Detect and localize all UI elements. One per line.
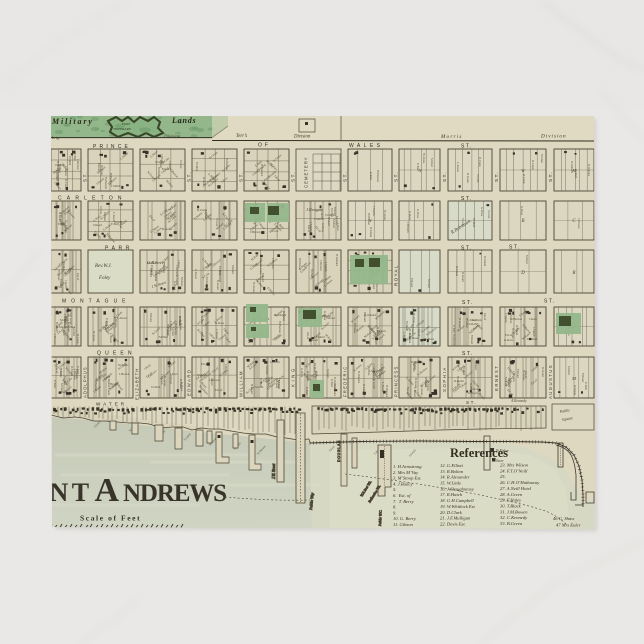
- svg-text:S.Cole: S.Cole: [277, 380, 281, 389]
- svg-text:CEMETERY: CEMETERY: [304, 156, 309, 188]
- svg-text:G.Ross: G.Ross: [408, 211, 412, 221]
- svg-text:R.Clark: R.Clark: [531, 160, 535, 170]
- svg-text:D.Mann: D.Mann: [178, 316, 182, 327]
- svg-text:G.Ross: G.Ross: [520, 206, 524, 216]
- svg-text:W.Burton: W.Burton: [278, 321, 282, 333]
- svg-text:J.Smith: J.Smith: [372, 206, 376, 216]
- svg-text:J.Brown: J.Brown: [114, 317, 118, 328]
- svg-text:R.Grant: R.Grant: [372, 379, 376, 389]
- svg-text:Terr’s: Terr’s: [236, 134, 247, 139]
- svg-text:H.Osburn: H.Osburn: [385, 385, 389, 398]
- svg-text:10. G. Berry: 10. G. Berry: [393, 516, 417, 521]
- svg-text:NT: NT: [50, 478, 93, 507]
- svg-text:W.Burton: W.Burton: [452, 334, 456, 346]
- svg-text:21. J.F.Mulligan: 21. J.F.Mulligan: [440, 516, 471, 521]
- svg-text:E.Bell: E.Bell: [369, 172, 373, 180]
- svg-text:D.Mann: D.Mann: [527, 337, 538, 341]
- svg-text:7. T. Berry: 7. T. Berry: [393, 499, 415, 504]
- svg-text:D.Mann: D.Mann: [70, 366, 74, 377]
- svg-text:D.Mann: D.Mann: [107, 385, 111, 396]
- svg-text:M.Hart: M.Hart: [58, 164, 62, 173]
- svg-text:2. Mrs M’Vay: 2. Mrs M’Vay: [393, 470, 419, 475]
- svg-text:M.Hart: M.Hart: [159, 335, 168, 339]
- svg-text:15. W.Little: 15. W.Little: [440, 481, 461, 486]
- svg-text:WALES: WALES: [349, 143, 383, 149]
- svg-text:Public W.C.: Public W.C.: [378, 510, 383, 527]
- svg-text:L.Street: L.Street: [112, 212, 116, 222]
- svg-text:S.Cole: S.Cole: [265, 366, 269, 375]
- svg-text:M.Rait: M.Rait: [327, 217, 331, 226]
- svg-text:Est.of: Est.of: [119, 221, 123, 229]
- svg-text:ST.: ST.: [83, 171, 88, 182]
- svg-text:3. M’Stoop Est.: 3. M’Stoop Est.: [393, 476, 422, 481]
- svg-text:T.Reed: T.Reed: [231, 265, 235, 274]
- svg-text:E.Bell: E.Bell: [413, 362, 417, 370]
- svg-text:T.Odell: T.Odell: [68, 156, 72, 165]
- svg-text:31. J.M.Bowen: 31. J.M.Bowen: [500, 509, 528, 514]
- svg-text:PRINCE: PRINCE: [93, 144, 131, 150]
- svg-text:13. R.Bolton: 13. R.Bolton: [440, 469, 464, 474]
- svg-text:R.Grant: R.Grant: [162, 227, 172, 231]
- svg-text:ST.: ST.: [461, 246, 473, 252]
- svg-text:D.Mann: D.Mann: [483, 256, 487, 267]
- svg-text:QUEEN: QUEEN: [97, 351, 136, 357]
- svg-text:G.Ross: G.Ross: [173, 281, 177, 291]
- svg-text:S.Cole: S.Cole: [179, 160, 183, 169]
- svg-text:Scale of Feet: Scale of Feet: [80, 514, 141, 523]
- svg-text:J.Brown: J.Brown: [119, 372, 130, 376]
- svg-text:ST.: ST.: [187, 171, 192, 182]
- svg-text:R.Clark: R.Clark: [522, 174, 526, 184]
- svg-text:16. J.Shaughnessy: 16. J.Shaughnessy: [440, 486, 475, 491]
- svg-text:J.Kerr: J.Kerr: [168, 161, 172, 169]
- svg-text:S.Cole: S.Cole: [487, 210, 491, 219]
- svg-text:G.Ross: G.Ross: [300, 368, 304, 378]
- svg-text:M.Hart: M.Hart: [162, 264, 166, 273]
- svg-text:M.Hart: M.Hart: [204, 210, 208, 219]
- svg-text:Est.of: Est.of: [505, 333, 513, 337]
- svg-text:D.Mann: D.Mann: [515, 325, 519, 336]
- svg-text:L.Street: L.Street: [381, 382, 385, 392]
- svg-text:30. T.Black: 30. T.Black: [500, 503, 522, 508]
- svg-text:W.Jones: W.Jones: [422, 153, 426, 164]
- svg-text:4. J.Bailey: 4. J.Bailey: [393, 481, 413, 486]
- svg-text:NDREWS: NDREWS: [123, 480, 227, 507]
- svg-text:J.Brown: J.Brown: [319, 260, 323, 271]
- svg-text:E.Bell: E.Bell: [53, 380, 57, 388]
- svg-text:OF: OF: [258, 143, 271, 149]
- svg-text:J.Smith: J.Smith: [324, 262, 328, 272]
- svg-text:M.Rait: M.Rait: [567, 366, 571, 375]
- svg-text:24. F.T.O’Neill: 24. F.T.O’Neill: [500, 468, 528, 473]
- svg-text:ST.: ST.: [462, 351, 474, 357]
- svg-text:M.Rait: M.Rait: [316, 335, 325, 339]
- svg-text:A.Kennedy: A.Kennedy: [510, 399, 527, 403]
- svg-text:6. Est. of: 6. Est. of: [393, 493, 411, 498]
- svg-text:T.Reed: T.Reed: [410, 278, 414, 287]
- svg-text:H.Osburn: H.Osburn: [333, 384, 337, 397]
- svg-text:TIPPERARY: TIPPERARY: [113, 127, 132, 131]
- svg-text:H: H: [571, 168, 576, 173]
- svg-text:S.Cole: S.Cole: [509, 315, 513, 324]
- svg-text:R.Clark: R.Clark: [179, 379, 183, 389]
- svg-text:Division.: Division.: [163, 135, 181, 140]
- svg-text:J.Brown: J.Brown: [53, 334, 57, 345]
- svg-text:ST.: ST.: [461, 196, 473, 202]
- svg-text:J.Brown: J.Brown: [209, 378, 220, 382]
- svg-text:W.Burton: W.Burton: [376, 170, 380, 182]
- svg-text:W.Jones: W.Jones: [118, 363, 129, 367]
- svg-text:L.Street: L.Street: [270, 360, 280, 364]
- svg-text:M.Hart: M.Hart: [103, 212, 107, 221]
- svg-text:ST.: ST.: [509, 245, 521, 251]
- svg-text:M.Hart: M.Hart: [66, 325, 75, 329]
- svg-text:ST.: ST.: [394, 171, 399, 182]
- svg-text:T.Reed: T.Reed: [169, 375, 173, 384]
- svg-text:G.Ross: G.Ross: [504, 338, 514, 342]
- svg-text:R.Grant: R.Grant: [466, 173, 470, 183]
- svg-text:D.Mann: D.Mann: [369, 227, 373, 238]
- svg-text:28. A.Green: 28. A.Green: [500, 492, 523, 497]
- svg-text:DOUGLAS: DOUGLAS: [337, 440, 341, 462]
- svg-text:23. Mrs Wilson: 23. Mrs Wilson: [500, 463, 529, 468]
- svg-text:R.Grant: R.Grant: [541, 367, 545, 377]
- svg-text:G.Ross: G.Ross: [480, 207, 484, 217]
- svg-text:J.Reagan: J.Reagan: [306, 207, 323, 212]
- svg-text:J.Kerr: J.Kerr: [529, 317, 537, 321]
- svg-text:1. H.Armstrong: 1. H.Armstrong: [393, 464, 422, 469]
- svg-text:29. F.Haley: 29. F.Haley: [500, 498, 522, 503]
- svg-text:ELIZABETH: ELIZABETH: [135, 368, 140, 400]
- svg-text:ST.: ST.: [343, 171, 348, 182]
- svg-text:R.Clark: R.Clark: [362, 384, 366, 394]
- svg-text:R.Grant: R.Grant: [461, 272, 465, 282]
- svg-text:M.Rait: M.Rait: [474, 361, 478, 370]
- svg-text:Est.of: Est.of: [201, 362, 209, 366]
- svg-text:ST.: ST.: [548, 171, 553, 182]
- svg-text:FREDERIC: FREDERIC: [343, 365, 348, 397]
- svg-text:WILLIAM: WILLIAM: [239, 370, 244, 397]
- svg-text:E.Bell: E.Bell: [452, 325, 456, 333]
- svg-text:R: R: [572, 271, 576, 276]
- svg-text:CARLETON: CARLETON: [58, 196, 127, 202]
- svg-text:J.Smith: J.Smith: [504, 313, 508, 323]
- svg-text:33. B.Green: 33. B.Green: [500, 521, 523, 526]
- svg-text:G.B.Street: G.B.Street: [147, 260, 166, 265]
- svg-text:brig.: brig.: [52, 135, 60, 140]
- svg-text:22. Davis Est.: 22. Davis Est.: [440, 522, 466, 527]
- svg-text:W.Jones: W.Jones: [92, 331, 96, 342]
- svg-text:M.Hart: M.Hart: [427, 279, 431, 288]
- svg-text:Division: Division: [540, 134, 567, 140]
- svg-text:J.Smith: J.Smith: [75, 369, 79, 379]
- svg-text:References: References: [450, 446, 508, 460]
- svg-text:FORT: FORT: [122, 122, 131, 126]
- svg-text:R.Grant: R.Grant: [458, 318, 462, 328]
- svg-text:25.: 25.: [500, 474, 506, 479]
- svg-text:Est.of: Est.of: [76, 273, 80, 281]
- svg-text:WATER: WATER: [96, 402, 127, 407]
- svg-text:Lands: Lands: [171, 116, 196, 125]
- svg-text:M.Rait: M.Rait: [326, 369, 330, 378]
- svg-text:E.Bell: E.Bell: [64, 225, 68, 233]
- svg-text:Rev.W.J.: Rev.W.J.: [94, 264, 112, 269]
- svg-text:EDWARD: EDWARD: [187, 369, 192, 396]
- svg-text:T.Odell: T.Odell: [151, 385, 160, 389]
- svg-text:M.Rait: M.Rait: [525, 255, 529, 264]
- svg-text:20. D.Clark: 20. D.Clark: [440, 510, 463, 515]
- svg-text:MONTAGUE: MONTAGUE: [62, 299, 131, 305]
- svg-text:T.Reed: T.Reed: [261, 273, 265, 282]
- svg-text:AUGUSTUS: AUGUSTUS: [548, 364, 553, 399]
- svg-text:27. A.Neill Hotel: 27. A.Neill Hotel: [500, 486, 532, 491]
- svg-text:ADOLPHUS: ADOLPHUS: [83, 366, 88, 398]
- svg-text:Foley: Foley: [98, 276, 111, 281]
- svg-text:R.Clark: R.Clark: [55, 322, 59, 332]
- svg-text:J.Brown: J.Brown: [76, 159, 80, 170]
- svg-text:11. Gibson: 11. Gibson: [393, 522, 414, 527]
- svg-text:G.Ross: G.Ross: [323, 311, 327, 321]
- svg-text:R.Grant: R.Grant: [202, 177, 206, 187]
- svg-text:18. G.H.Campbell: 18. G.H.Campbell: [440, 498, 474, 503]
- svg-text:32. C.Kennedy: 32. C.Kennedy: [500, 515, 528, 520]
- svg-text:M.Rait: M.Rait: [205, 277, 209, 286]
- svg-text:Morris: Morris: [440, 134, 463, 140]
- svg-text:PARR: PARR: [105, 246, 133, 252]
- svg-text:J.Smith: J.Smith: [309, 222, 313, 232]
- svg-text:M.Rait: M.Rait: [430, 158, 434, 167]
- svg-text:T.Reed: T.Reed: [470, 335, 474, 344]
- svg-text:S.Cole: S.Cole: [99, 206, 103, 215]
- svg-text:J.Brown: J.Brown: [577, 218, 581, 229]
- svg-text:G.Ross: G.Ross: [416, 209, 420, 219]
- svg-text:26. C.H.O’Hathaway: 26. C.H.O’Hathaway: [500, 480, 540, 485]
- svg-text:B: B: [522, 219, 525, 224]
- svg-text:R.Clark: R.Clark: [478, 157, 482, 167]
- svg-text:S.Cole: S.Cole: [476, 174, 480, 183]
- svg-text:Est.of: Est.of: [483, 313, 487, 321]
- svg-text:G.Ross: G.Ross: [321, 223, 325, 233]
- svg-text:J.Kerr: J.Kerr: [177, 260, 181, 268]
- svg-text:W.Jones: W.Jones: [412, 313, 416, 324]
- svg-text:ST.: ST.: [461, 144, 473, 150]
- svg-text:L.Street: L.Street: [380, 364, 384, 374]
- svg-text:14. R.Alexander: 14. R.Alexander: [440, 475, 470, 480]
- svg-text:PRINCESS: PRINCESS: [394, 365, 399, 397]
- svg-text:H.Osburn: H.Osburn: [587, 164, 591, 177]
- svg-text:KING: KING: [291, 366, 296, 387]
- svg-text:W.Burton: W.Burton: [109, 173, 113, 185]
- svg-text:46 G. Shaw: 46 G. Shaw: [553, 516, 575, 521]
- svg-text:W.Jones: W.Jones: [383, 210, 387, 221]
- svg-text:D.Mann: D.Mann: [455, 266, 459, 277]
- svg-text:H.Osburn: H.Osburn: [357, 371, 361, 384]
- svg-text:17. R.Hatch: 17. R.Hatch: [440, 492, 463, 497]
- svg-text:J.Smith: J.Smith: [532, 327, 536, 337]
- svg-text:W.Jones: W.Jones: [57, 270, 61, 281]
- svg-text:J.Brown: J.Brown: [160, 374, 164, 385]
- svg-text:R.Clark: R.Clark: [64, 179, 68, 189]
- svg-text:M.Rait: M.Rait: [332, 219, 336, 228]
- svg-text:9.: 9.: [393, 510, 396, 515]
- svg-text:J.Brown: J.Brown: [160, 154, 164, 165]
- svg-text:D.Mann: D.Mann: [573, 385, 577, 396]
- svg-text:G.Ross: G.Ross: [425, 337, 435, 341]
- svg-text:ERNEST: ERNEST: [494, 365, 499, 391]
- svg-text:S.Cole: S.Cole: [59, 390, 68, 394]
- svg-text:A: A: [95, 472, 120, 509]
- svg-text:T.Reed: T.Reed: [149, 313, 153, 322]
- svg-text:47 Mrs Euler: 47 Mrs Euler: [556, 523, 581, 528]
- svg-text:8.: 8.: [393, 505, 396, 510]
- svg-text:W.Jones: W.Jones: [252, 282, 256, 293]
- svg-text:M.Rait: M.Rait: [180, 277, 184, 286]
- svg-text:J.W. Street: J.W. Street: [272, 463, 276, 479]
- svg-text:ST.: ST.: [466, 400, 477, 405]
- svg-text:E.Bell: E.Bell: [584, 382, 588, 390]
- svg-text:J.Brown: J.Brown: [271, 258, 275, 269]
- svg-text:ST.: ST.: [462, 300, 474, 306]
- svg-text:T.Reed: T.Reed: [97, 163, 101, 172]
- svg-text:Est.of: Est.of: [215, 388, 223, 392]
- svg-text:Military: Military: [51, 117, 94, 126]
- svg-text:J.Smith: J.Smith: [369, 369, 379, 373]
- svg-text:W.Burton: W.Burton: [298, 258, 302, 270]
- svg-text:5.: 5.: [393, 487, 396, 492]
- svg-text:R.Grant: R.Grant: [363, 312, 367, 322]
- svg-text:G.Ross: G.Ross: [468, 391, 478, 395]
- svg-text:W.Burton: W.Burton: [94, 379, 98, 391]
- svg-text:M.Hart: M.Hart: [540, 154, 544, 163]
- svg-text:ROYAL: ROYAL: [394, 264, 399, 286]
- svg-text:J.Brown: J.Brown: [406, 222, 410, 233]
- svg-text:D: D: [520, 271, 525, 276]
- svg-text:E.Bell: E.Bell: [305, 387, 309, 395]
- svg-text:L.Street: L.Street: [259, 255, 263, 265]
- svg-text:Division: Division: [293, 135, 311, 140]
- svg-text:ST.: ST.: [442, 171, 447, 182]
- svg-text:ST.: ST.: [494, 171, 499, 182]
- svg-text:12. G.Elliott: 12. G.Elliott: [440, 463, 464, 468]
- svg-text:SOPHIA: SOPHIA: [442, 366, 447, 392]
- svg-text:L.Street: L.Street: [467, 318, 477, 322]
- svg-text:T.Odell: T.Odell: [195, 162, 199, 171]
- svg-text:W.Jones: W.Jones: [522, 370, 526, 381]
- svg-text:ST.: ST.: [239, 171, 244, 182]
- svg-text:T.Odell: T.Odell: [456, 376, 460, 385]
- svg-text:T.Reed: T.Reed: [333, 207, 337, 216]
- svg-text:H.Osburn: H.Osburn: [335, 254, 339, 267]
- svg-text:19. W.Whitlock Est: 19. W.Whitlock Est: [440, 504, 476, 509]
- svg-text:L.Street: L.Street: [194, 269, 198, 279]
- svg-text:ST.: ST.: [544, 299, 556, 305]
- svg-text:T.Reed: T.Reed: [93, 223, 102, 227]
- svg-text:W.Burton: W.Burton: [218, 270, 222, 282]
- svg-text:ST.: ST.: [291, 171, 296, 182]
- svg-text:T.Reed: T.Reed: [581, 373, 585, 382]
- svg-text:L.Street: L.Street: [456, 162, 460, 172]
